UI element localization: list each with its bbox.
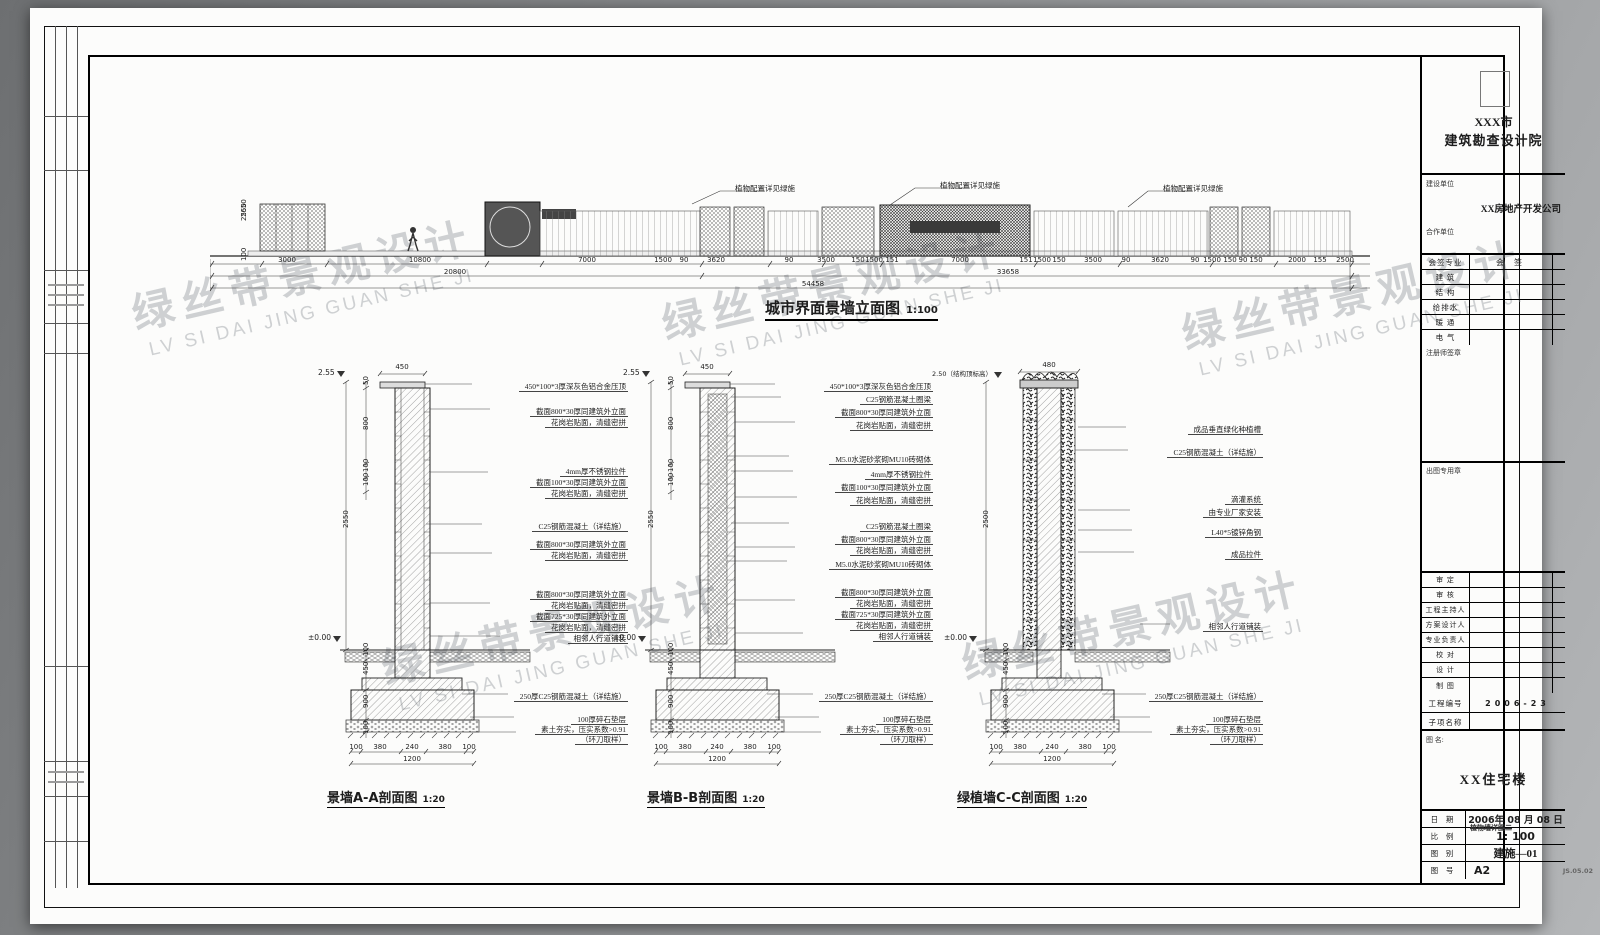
person-figure <box>408 227 418 251</box>
partner-label: 合作单位 <box>1426 227 1454 237</box>
corner-code: JS.05.02 <box>1563 867 1593 875</box>
tb-client: 建设单位 XX房地产开发公司 合作单位 <box>1422 175 1565 255</box>
tb-institute: XXX市 建筑勘查设计院 <box>1422 57 1565 175</box>
plant-note: 植物配置详见绿施 <box>1163 183 1223 194</box>
level-mark-ground: ±0.00 <box>308 633 341 646</box>
section-b-labels: 450*100*3厚深灰色铝合金压顶C25钢筋混凝土圈梁截面800*30厚同建筑… <box>755 370 933 750</box>
project-no-value: 2006-23 <box>1470 693 1565 713</box>
institute-city: XXX市 <box>1422 113 1565 130</box>
tb-project-no: 工程编号 2006-23 <box>1422 693 1565 713</box>
plant-note: 植物配置详见绿施 <box>940 180 1000 191</box>
tb-out-seal: 出图专用章 <box>1422 463 1565 573</box>
out-seal-label: 出图专用章 <box>1426 466 1461 476</box>
tb-reg-seal: 注册师签章 <box>1422 345 1565 463</box>
project-no-label: 工程编号 <box>1422 693 1470 713</box>
section-c-labels: 成品垂直绿化种植槽C25钢筋混凝土（详结施）滴灌系统由专业厂家安装L40*5镀锌… <box>1098 370 1263 750</box>
sign-row: 结 构 <box>1422 285 1565 300</box>
sign-row: 建 筑 <box>1422 270 1565 285</box>
person-row: 校 对 <box>1422 648 1565 663</box>
number-row: 图 号 A2 JS.05.02 <box>1422 862 1565 879</box>
subitem-label: 子项名称 <box>1422 713 1470 731</box>
sheet-inner-frame: 绿丝带景观设计LV SI DAI JING GUAN SHE JI 绿丝带景观设… <box>88 55 1505 885</box>
sign-row: 给排水 <box>1422 300 1565 315</box>
tb-subitem: 子项名称 <box>1422 713 1565 731</box>
drawing-name-label: 图 名: <box>1426 735 1444 745</box>
section-c-title: 绿植墙C-C剖面图1:20 <box>957 787 1087 808</box>
client-name: XX房地产开发公司 <box>1422 201 1561 215</box>
tb-drawing-name: 图 名: XX住宅楼 <box>1422 731 1565 811</box>
section-a-drawing: 2.55 ±0.00 450 2550 50800100100100450900… <box>300 360 630 780</box>
sign-row: 会签专业 会 签 <box>1422 255 1565 270</box>
level-mark-ground: ±0.00 <box>944 633 977 646</box>
tb-person-table: 审 定 审 核 工程主持人 方案设计人 专业负责人 <box>1422 573 1565 693</box>
elevation-graphics <box>210 177 1370 307</box>
section-a-labels: 450*100*3厚深灰色铝合金压顶截面800*30厚同建筑外立面花岗岩贴面，清… <box>450 370 628 750</box>
reg-seal-label: 注册师签章 <box>1426 348 1461 358</box>
person-row: 审 定 <box>1422 573 1565 588</box>
title-block: XXX市 建筑勘查设计院 建设单位 XX房地产开发公司 合作单位 会签专业 会 … <box>1420 57 1565 885</box>
client-label: 建设单位 <box>1426 179 1454 189</box>
drawing-sheet: 绿丝带景观设计LV SI DAI JING GUAN SHE JI 绿丝带景观设… <box>30 8 1542 924</box>
person-row: 方案设计人 <box>1422 618 1565 633</box>
binding-strip-table <box>44 26 88 888</box>
person-row: 审 核 <box>1422 588 1565 603</box>
person-row: 工程主持人 <box>1422 603 1565 618</box>
section-b-title: 景墙B-B剖面图1:20 <box>647 787 765 808</box>
drawing-name-value: XX住宅楼 <box>1422 769 1565 788</box>
elevation-title: 城市界面景墙立面图1:100 <box>765 297 938 321</box>
tb-sign-table: 会签专业 会 签 建 筑 结 构 给排水 暖 通 <box>1422 255 1565 345</box>
level-mark-ground: ±0.00 <box>613 633 646 646</box>
institute-name: 建筑勘查设计院 <box>1422 130 1565 149</box>
institute-logo-box <box>1480 71 1510 107</box>
screenshot-root: { "watermark":{"cn":"绿丝带景观设计","en":"LV S… <box>0 0 1600 935</box>
scale-row: 比 例 植物墙详图二1: 100 <box>1422 828 1565 845</box>
tb-bottom-rows: 日 期 2006年 08 月 08 日 比 例 植物墙详图二1: 100 图 别… <box>1422 811 1565 879</box>
person-row: 专业负责人 <box>1422 633 1565 648</box>
plant-note: 植物配置详见绿施 <box>735 183 795 194</box>
level-mark-top: 2.50（结构顶标高） <box>932 368 1002 382</box>
person-row: 制 图 <box>1422 678 1565 693</box>
scale-strike-text: 植物墙详图二 <box>1470 823 1512 833</box>
sign-row: 暖 通 <box>1422 315 1565 330</box>
category-row: 图 别 建施—01 <box>1422 845 1565 862</box>
level-mark-top: 2.55 <box>318 368 345 381</box>
person-row: 设 计 <box>1422 663 1565 678</box>
section-b-drawing: 2.55 ±0.00 450 2550 50800100100100450900… <box>605 360 935 780</box>
section-a-title: 景墙A-A剖面图1:20 <box>327 787 445 808</box>
level-mark-top: 2.55 <box>623 368 650 381</box>
section-c-drawing: 2.50（结构顶标高） ±0.00 480 2500 100450900100 … <box>930 360 1270 780</box>
elevation-drawing: 植物配置详见绿施 植物配置详见绿施 植物配置详见绿施 3000108007000… <box>210 177 1370 307</box>
sign-row: 电 气 <box>1422 330 1565 345</box>
